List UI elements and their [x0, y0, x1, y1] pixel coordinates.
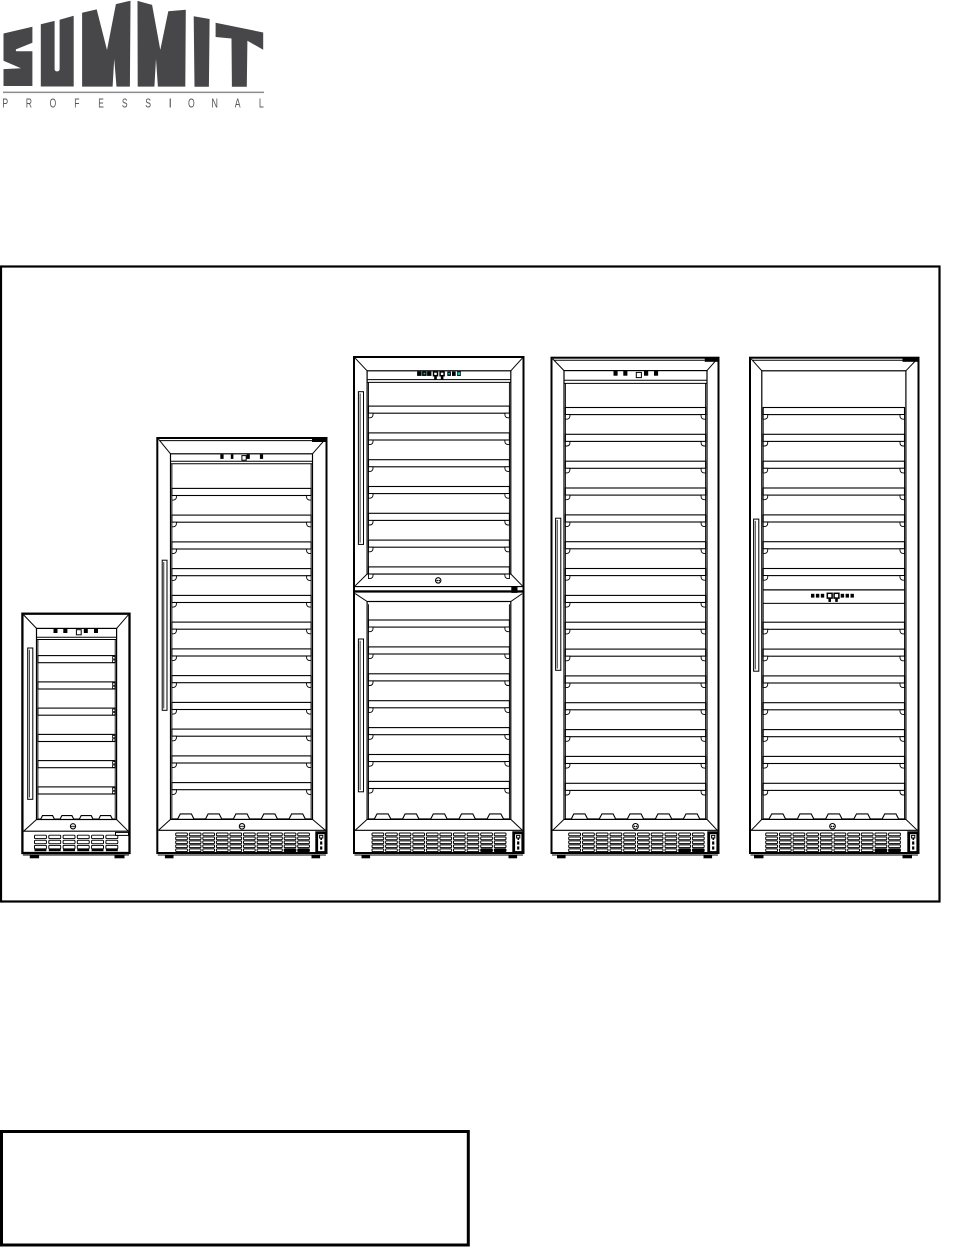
svg-text:P: P — [2, 96, 8, 111]
svg-text:O: O — [188, 96, 195, 111]
svg-text:I: I — [169, 96, 173, 111]
svg-text:N: N — [211, 96, 218, 111]
svg-text:A: A — [235, 96, 241, 111]
svg-text:F: F — [74, 96, 79, 111]
svg-text:S: S — [122, 96, 128, 111]
svg-text:L: L — [259, 96, 264, 111]
svg-text:E: E — [98, 96, 104, 111]
svg-text:S: S — [145, 96, 151, 111]
svg-text:R: R — [26, 96, 32, 111]
svg-text:O: O — [50, 96, 57, 111]
